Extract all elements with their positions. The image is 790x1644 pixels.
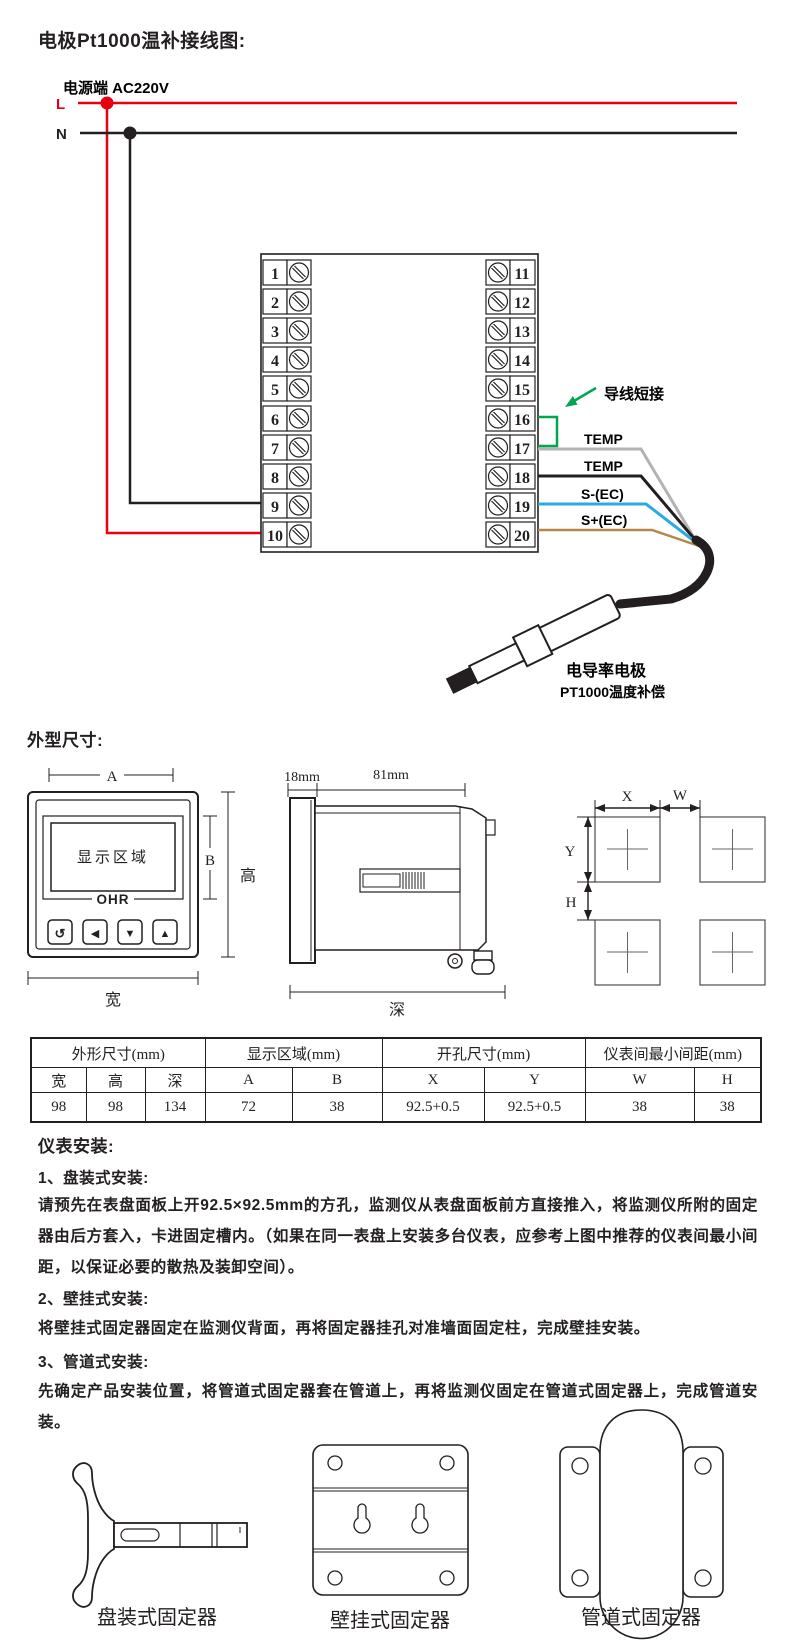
- svg-text:14: 14: [514, 353, 530, 370]
- manual-page: 电极Pt1000温补接线图: 电源端 AC220V L N 1 2 3 4 5 …: [0, 0, 790, 1644]
- panel-mount-fixture: [73, 1463, 247, 1607]
- electrode-name-label: 电导率电极: [566, 661, 647, 680]
- fixture-drawings: 盘装式固定器 壁挂式固定器 管道式固定器: [0, 1400, 790, 1644]
- svg-text:18: 18: [514, 470, 530, 487]
- dimension-drawings: A 显示区域 OHR ↺ ◀ ▼ ▲ B: [0, 750, 790, 1030]
- install-s2-title: 2、壁挂式安装:: [38, 1287, 149, 1309]
- front-view: A 显示区域 OHR ↺ ◀ ▼ ▲ B: [28, 768, 256, 1009]
- dim-x-label: X: [622, 789, 633, 805]
- brand-logo: OHR: [97, 892, 130, 907]
- dim-b-label: B: [205, 853, 215, 869]
- install-s3-title: 3、管道式安装:: [38, 1350, 149, 1372]
- s-plus-wire-brown: [538, 530, 699, 546]
- dim-a-label: A: [107, 769, 118, 785]
- svg-text:11: 11: [514, 266, 529, 283]
- svg-text:6: 6: [271, 412, 279, 429]
- val-a: 72: [205, 1093, 292, 1123]
- dim-y-label: Y: [565, 844, 576, 860]
- svg-text:19: 19: [514, 499, 530, 516]
- group-display-area: 显示区域(mm): [205, 1038, 382, 1068]
- svg-text:16: 16: [514, 412, 530, 429]
- install-s1-title: 1、盘装式安装:: [38, 1166, 149, 1188]
- height-label: 高: [240, 867, 256, 885]
- down-arrow-icon: ▼: [125, 928, 136, 940]
- svg-text:5: 5: [271, 382, 279, 399]
- front-buttons: ↺ ◀ ▼ ▲: [48, 920, 177, 944]
- pipe-rail-left: [560, 1447, 600, 1597]
- install-heading: 仪表安装:: [38, 1132, 114, 1157]
- jumper-wire-16-17: [538, 417, 557, 446]
- display-area-label: 显示区域: [77, 849, 149, 866]
- val-width: 98: [31, 1093, 86, 1123]
- col-a: A: [205, 1068, 292, 1093]
- group-min-spacing: 仪表间最小间距(mm): [585, 1038, 761, 1068]
- dim-h-label: H: [566, 895, 577, 911]
- cutout-center-marks: [607, 829, 753, 973]
- terminal-block: 1 2 3 4 5 6 7 8 9 10 11 12 13 14 15 16 1…: [261, 254, 538, 552]
- wire-label-s-minus: S-(EC): [581, 486, 624, 502]
- cutout-layout: X W Y H: [565, 788, 765, 985]
- wire-label-temp1: TEMP: [584, 431, 623, 447]
- svg-text:17: 17: [514, 441, 530, 458]
- depth-label: 深: [389, 1001, 405, 1019]
- terminal-19: 19: [486, 493, 535, 518]
- install-s2-body: 将壁挂式固定器固定在监测仪背面，再将固定器挂孔对准墙面固定柱，完成壁挂安装。: [38, 1313, 758, 1344]
- svg-text:3: 3: [271, 324, 279, 341]
- electrode-sub-label: PT1000温度补偿: [560, 684, 665, 700]
- electrode-cable: [620, 540, 710, 604]
- col-x: X: [382, 1068, 484, 1093]
- dimensions-heading: 外型尺寸:: [27, 726, 103, 751]
- jumper-arrow-line: [574, 388, 596, 401]
- table-values-row: 98 98 134 72 38 92.5+0.5 92.5+0.5 38 38: [31, 1093, 761, 1123]
- terminal-17: 17: [486, 435, 535, 460]
- val-y: 92.5+0.5: [484, 1093, 585, 1123]
- power-supply-label: 电源端 AC220V: [63, 79, 169, 97]
- col-width: 宽: [31, 1068, 86, 1093]
- loop-icon: ↺: [55, 926, 66, 941]
- terminal-14: 14: [486, 347, 535, 372]
- col-depth: 深: [145, 1068, 205, 1093]
- terminal-12: 12: [486, 289, 535, 314]
- terminal-15: 15: [486, 376, 535, 401]
- pipe-mount-fixture: [560, 1410, 723, 1638]
- terminal-16: 16: [486, 406, 535, 431]
- line-n-label: N: [56, 126, 67, 143]
- val-b: 38: [292, 1093, 382, 1123]
- table-group-header-row: 外形尺寸(mm) 显示区域(mm) 开孔尺寸(mm) 仪表间最小间距(mm): [31, 1038, 761, 1068]
- group-cutout-size: 开孔尺寸(mm): [382, 1038, 585, 1068]
- terminal-1: 1: [263, 260, 311, 285]
- panel-fixture-label: 盘装式固定器: [97, 1606, 217, 1629]
- cable-gland: [472, 951, 494, 974]
- side-view: 18mm 81mm: [284, 768, 505, 1019]
- jumper-label: 导线短接: [604, 385, 664, 403]
- svg-text:13: 13: [514, 324, 530, 341]
- terminal-10: 10: [263, 522, 311, 547]
- pipe-rail-right: [683, 1447, 723, 1597]
- terminal-11: 11: [486, 260, 535, 285]
- terminal-2: 2: [263, 289, 311, 314]
- col-h: H: [694, 1068, 761, 1093]
- pipe-fixture-label: 管道式固定器: [581, 1606, 701, 1629]
- spec-table: 外形尺寸(mm) 显示区域(mm) 开孔尺寸(mm) 仪表间最小间距(mm) 宽…: [30, 1037, 762, 1123]
- svg-text:20: 20: [514, 528, 530, 545]
- terminal-7: 7: [263, 435, 311, 460]
- svg-text:4: 4: [271, 353, 279, 370]
- val-x: 92.5+0.5: [382, 1093, 484, 1123]
- terminal-13: 13: [486, 318, 535, 343]
- jumper-arrow-head: [565, 396, 578, 407]
- wall-plate: [313, 1445, 468, 1595]
- wire-label-temp2: TEMP: [584, 458, 623, 474]
- wall-mount-fixture: [313, 1445, 468, 1595]
- group-outline-size: 外形尺寸(mm): [31, 1038, 205, 1068]
- dim-81mm-label: 81mm: [373, 768, 409, 783]
- svg-text:10: 10: [267, 528, 283, 545]
- mounting-slider: [360, 869, 460, 892]
- wire-label-s-plus: S+(EC): [581, 512, 627, 528]
- table-column-header-row: 宽 高 深 A B X Y W H: [31, 1068, 761, 1093]
- neutral-wire-to-terminal-9: [130, 133, 262, 503]
- bottom-screw: [448, 954, 462, 968]
- svg-text:2: 2: [271, 295, 279, 312]
- up-arrow-icon: ▲: [160, 928, 171, 940]
- terminal-3: 3: [263, 318, 311, 343]
- terminal-4: 4: [263, 347, 311, 372]
- col-b: B: [292, 1068, 382, 1093]
- col-height: 高: [86, 1068, 145, 1093]
- cutout-dim-y-h: Y H: [565, 817, 595, 920]
- width-label: 宽: [105, 991, 121, 1009]
- val-h: 38: [694, 1093, 761, 1123]
- wiring-diagram: 电源端 AC220V L N 1 2 3 4 5 6 7 8 9 10: [0, 0, 790, 712]
- rear-clip-tab: [486, 820, 495, 835]
- terminal-8: 8: [263, 464, 311, 489]
- svg-text:1: 1: [271, 266, 279, 283]
- val-depth: 134: [145, 1093, 205, 1123]
- svg-text:15: 15: [514, 382, 530, 399]
- val-height: 98: [86, 1093, 145, 1123]
- col-w: W: [585, 1068, 694, 1093]
- wall-fixture-label: 壁挂式固定器: [330, 1609, 450, 1632]
- terminal-20: 20: [486, 522, 535, 547]
- val-w: 38: [585, 1093, 694, 1123]
- terminal-18: 18: [486, 464, 535, 489]
- left-arrow-icon: ◀: [91, 928, 100, 940]
- dim-18mm-label: 18mm: [284, 770, 320, 785]
- col-y: Y: [484, 1068, 585, 1093]
- svg-text:7: 7: [271, 441, 279, 458]
- dim-w-label: W: [673, 788, 688, 804]
- cutout-dim-x-w: X W: [595, 788, 700, 817]
- svg-text:12: 12: [514, 295, 530, 312]
- terminal-6: 6: [263, 406, 311, 431]
- fixture-wings: [73, 1463, 114, 1607]
- pipe-saddle: [600, 1410, 683, 1638]
- svg-text:9: 9: [271, 499, 279, 516]
- line-l-label: L: [56, 96, 65, 113]
- install-s1-body: 请预先在表盘面板上开92.5×92.5mm的方孔，监测仪从表盘面板前方直接推入，…: [38, 1190, 758, 1283]
- svg-text:8: 8: [271, 470, 279, 487]
- terminal-9: 9: [263, 493, 311, 518]
- front-panel-outline: [28, 792, 198, 957]
- terminal-5: 5: [263, 376, 311, 401]
